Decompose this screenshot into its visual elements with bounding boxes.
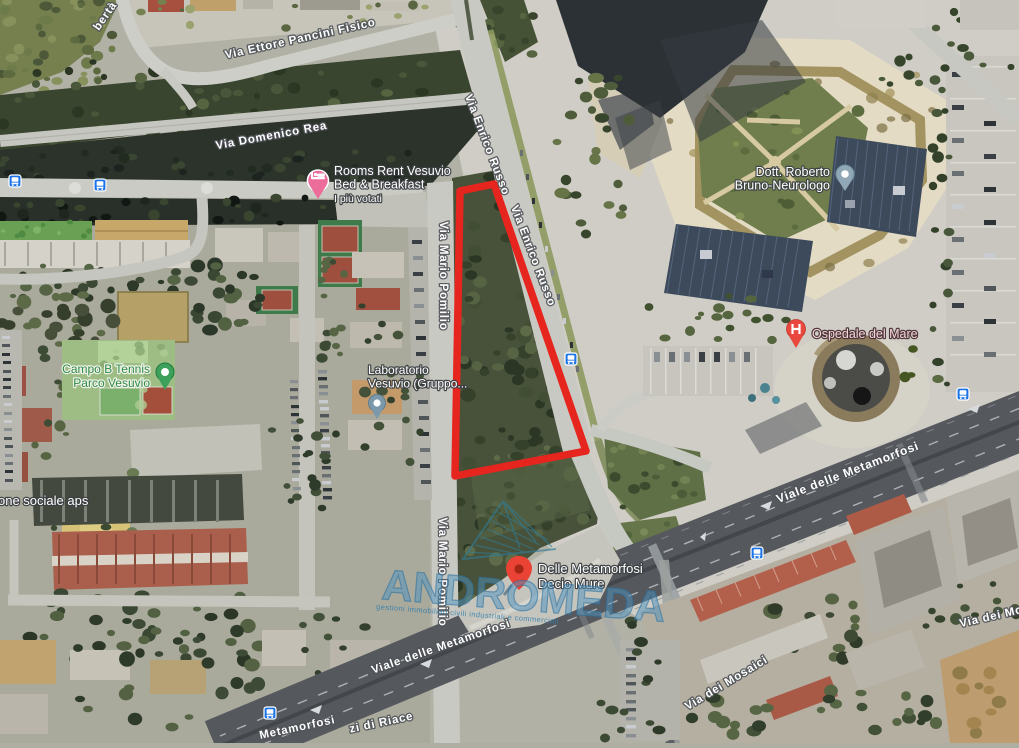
svg-text:Dott. Roberto: Dott. Roberto (756, 165, 830, 179)
svg-text:Laboratorio: Laboratorio (368, 363, 429, 377)
svg-text:Via Mario Pomilio: Via Mario Pomilio (437, 221, 449, 330)
svg-text:Ospedale del Mare: Ospedale del Mare (812, 327, 918, 341)
svg-text:Parco Vesuvio: Parco Vesuvio (73, 376, 150, 390)
svg-text:Campo B Tennis: Campo B Tennis (62, 362, 150, 376)
svg-text:Bruno-Neurologo: Bruno-Neurologo (735, 179, 830, 193)
svg-text:Rooms Rent Vesuvio: Rooms Rent Vesuvio (334, 164, 451, 178)
svg-text:Bed & Breakfast: Bed & Breakfast (334, 178, 425, 192)
svg-text:Vesuvio (Gruppo...: Vesuvio (Gruppo... (368, 377, 467, 391)
svg-text:Delle Metamorfosi: Delle Metamorfosi (538, 561, 643, 576)
svg-text:I più votati: I più votati (334, 193, 382, 205)
svg-text:one sociale aps: one sociale aps (0, 493, 89, 508)
